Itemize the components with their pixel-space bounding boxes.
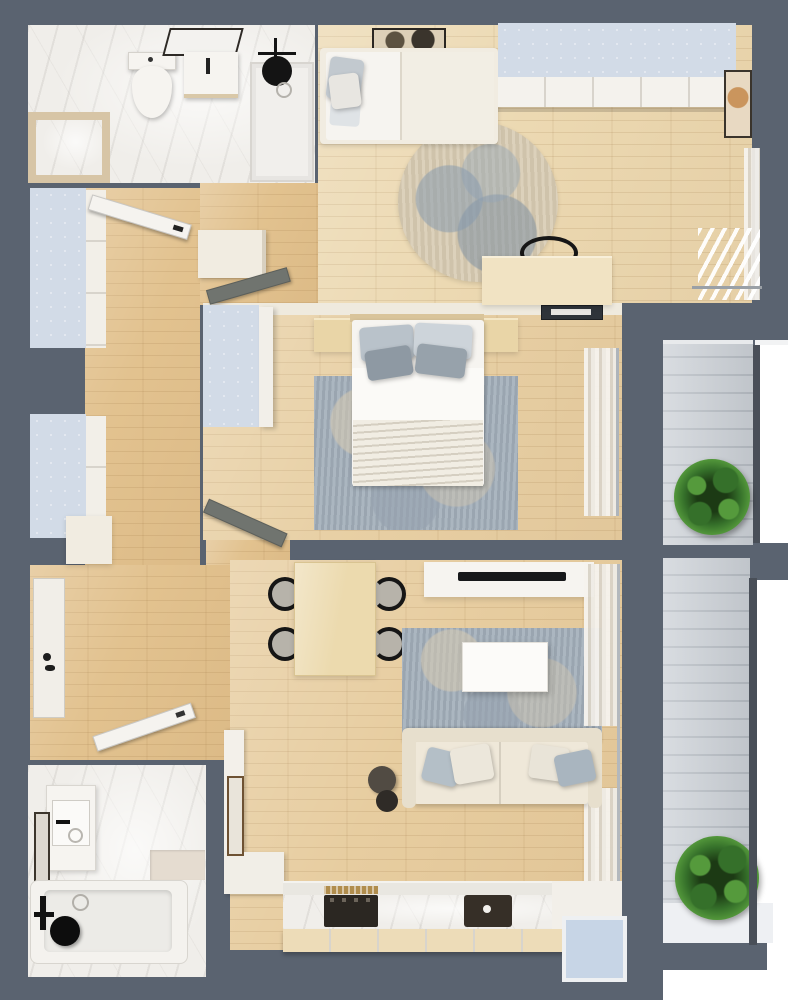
- master-blanket: [353, 420, 483, 486]
- side-table-small: [376, 790, 398, 812]
- bl-shelf-ledge: [150, 850, 205, 880]
- bathroom-door-handle: [175, 710, 185, 718]
- bl-wall-mirror: [34, 812, 50, 888]
- balcony-top-edge-highlight: [663, 340, 753, 344]
- kids-picture-frame: [724, 70, 752, 138]
- basin-faucet-icon: [206, 58, 210, 74]
- kids-window-frame: [692, 286, 762, 289]
- kitchen-corner-block: [224, 852, 284, 894]
- dining-chair-bottom-right: [372, 627, 406, 661]
- kitchen-cooktop: [324, 895, 378, 927]
- coffee-table: [462, 642, 548, 692]
- kids-pillow-white: [328, 72, 362, 109]
- nightstand-right: [480, 318, 518, 352]
- kids-bed-duvet: [400, 52, 494, 140]
- bathroom-bench-top: [36, 120, 102, 175]
- console-decor-vase: [43, 653, 51, 661]
- kitchen-window-glass: [566, 920, 623, 978]
- balcony-top-right-rail: [752, 345, 760, 543]
- balcony-bottom-plant: [675, 836, 759, 920]
- living-tv: [458, 572, 566, 581]
- dining-chair-top-right: [372, 577, 406, 611]
- wall-balcony-bottom-rail: [663, 943, 767, 970]
- balcony-bottom-right-rail: [749, 578, 757, 945]
- hall-closet: [198, 230, 266, 278]
- sink-faucet: [483, 905, 491, 913]
- bathroom-bench: [28, 112, 110, 183]
- kids-curtain-drape: [698, 228, 760, 300]
- dining-table: [294, 562, 376, 676]
- hall-wardrobe-1-top: [30, 188, 86, 348]
- tub-shower-head: [50, 916, 80, 946]
- master-wardrobe-top: [203, 305, 259, 427]
- shower-drain-icon: [276, 82, 292, 98]
- balcony-railing-highlight: [755, 340, 788, 345]
- hall-end-cabinet: [66, 516, 112, 564]
- tv-screen-inner: [551, 309, 591, 315]
- hall-console: [33, 578, 65, 718]
- kitchen-hood-brass: [324, 886, 378, 894]
- washbasin-top-left: [184, 52, 238, 98]
- kitchen-cabinet-front: [283, 929, 571, 952]
- cooktop-knobs: [330, 898, 372, 902]
- entry-door-handle: [173, 225, 184, 233]
- kids-wardrobe-top: [498, 23, 736, 77]
- master-pillow-front-right: [414, 343, 467, 379]
- sofa-pillow-cream-left: [449, 743, 495, 785]
- kids-wardrobe-shadow: [498, 107, 736, 112]
- floor-plan-canvas: [0, 0, 793, 1000]
- kitchen-sink: [464, 895, 512, 927]
- living-curtain-upper: [584, 564, 620, 726]
- bl-basin-faucet: [56, 820, 70, 824]
- standing-mirror: [227, 776, 244, 856]
- bl-basin-drain: [68, 828, 83, 843]
- tub-faucet-cross: [34, 912, 54, 917]
- master-window-curtain: [584, 348, 618, 516]
- sofa-arm-left: [402, 728, 416, 808]
- toilet-flush-button: [148, 57, 153, 62]
- sofa-seam: [499, 742, 501, 804]
- kids-wardrobe-front: [498, 77, 736, 107]
- master-wardrobe-front: [259, 307, 273, 427]
- tub-drain-ring: [72, 894, 89, 911]
- nightstand-left: [314, 318, 352, 352]
- kids-desk: [482, 256, 612, 305]
- shower-head-icon: [262, 56, 292, 86]
- shower-crossbar-icon: [258, 52, 296, 55]
- master-wall-tv: [541, 305, 603, 320]
- balcony-top-plant: [674, 459, 750, 535]
- console-decor-bowl: [45, 665, 55, 671]
- master-window-frame: [616, 348, 619, 516]
